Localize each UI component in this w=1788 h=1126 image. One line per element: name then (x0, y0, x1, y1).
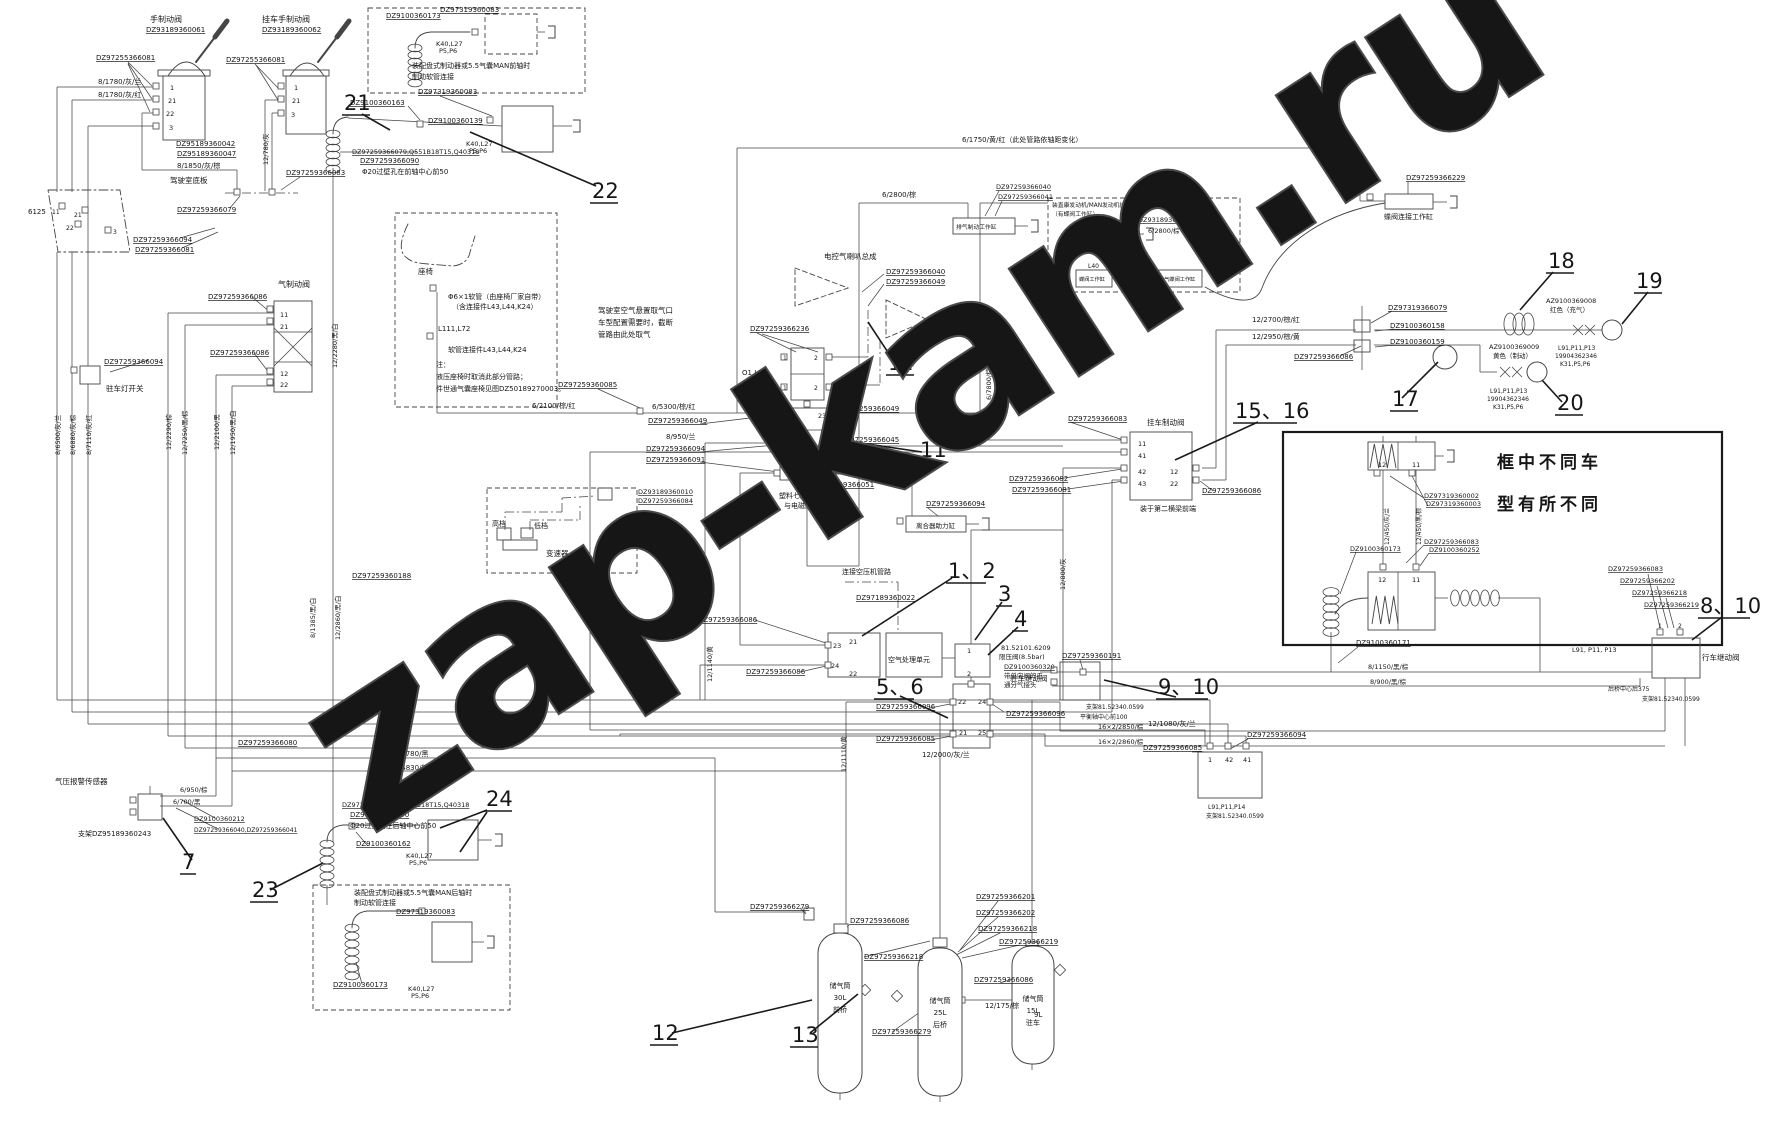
part-label: 支架81.52340.0599 (1086, 703, 1144, 711)
part-label: 1 (170, 84, 174, 92)
part-label: 22 (958, 698, 966, 706)
port-square (130, 809, 136, 815)
shape-path (196, 37, 215, 62)
part-label: 挂车手制动阀 (262, 14, 310, 24)
pipe-size-label: 12/7250/黑/棕 (180, 410, 189, 455)
part-label: 22 (1170, 480, 1178, 488)
item-number: 18 (1548, 249, 1575, 273)
item-leader (1692, 617, 1722, 640)
valve-diamond (891, 990, 902, 1001)
watermark-text: zap-kam.ru (250, 0, 1584, 885)
item-number: 5、6 (876, 675, 924, 699)
part-label: 装配盘式制动器或5.5气囊MAN前轴时 (412, 61, 530, 70)
part-label: 41 (1138, 452, 1146, 460)
part-label: DZ97259366086 (746, 668, 806, 676)
port-square (1409, 470, 1415, 476)
part-label: DZ97259366086 (1202, 487, 1262, 495)
hose-coil (345, 948, 359, 956)
part-label: 3 (169, 124, 173, 132)
part-label: DZ97259366086 (850, 917, 910, 925)
part-label: 平衡轴中心前100 (1080, 713, 1128, 721)
part-label: 21 (849, 638, 857, 646)
pipe-size-label: 12/800/灰 (1058, 558, 1067, 590)
part-label: AZ9100369008 (1546, 297, 1596, 305)
part-label: 驾驶室空气悬置取气口 (598, 305, 673, 315)
part-label: 制动软管连接 (354, 898, 396, 907)
part-label: 座椅 (418, 266, 433, 276)
part-label: 12 (1378, 461, 1386, 469)
pipe-line (1080, 660, 1083, 670)
pipe-line (1390, 476, 1424, 498)
part-label: 后桥中心后375 (1608, 685, 1650, 693)
part-label: DZ9100360173 (1350, 545, 1401, 553)
part-label: DZ97319360003 (1426, 500, 1481, 508)
component-box (432, 922, 472, 962)
part-label: 6/700/黑 (173, 798, 201, 806)
part-label: 气压报警传感器 (55, 776, 108, 786)
port-square (1243, 743, 1249, 749)
part-label: 手制动阀 (150, 14, 182, 24)
port-square (1121, 437, 1127, 443)
item-number: 20 (1557, 391, 1584, 415)
port-square (1121, 449, 1127, 455)
part-label: 11 (1412, 461, 1420, 469)
part-label: 21 (168, 97, 176, 105)
part-label: 3 (113, 229, 117, 236)
item-leader (1175, 422, 1258, 460)
port-square (130, 797, 136, 803)
part-label: DZ9100360173 (333, 981, 388, 989)
part-label: DZ97259366085 (876, 735, 935, 743)
part-label: DZ97259366079 (177, 206, 236, 214)
port-square (1413, 564, 1419, 570)
port-square (82, 207, 88, 213)
part-label: 11 (1412, 576, 1420, 584)
part-label: 件世通气囊座椅见图DZ50189270003。 (436, 384, 565, 393)
part-label: 注： (436, 360, 450, 369)
part-label: DZ97259366086 (1294, 353, 1354, 361)
part-label: 22 (280, 381, 288, 389)
pipe-line (1371, 311, 1392, 323)
part-label: K31,P5,P6 (1493, 404, 1523, 411)
port-square (825, 642, 831, 648)
port-square (1080, 669, 1086, 675)
hose-coil (326, 158, 340, 166)
shape-path (1335, 598, 1368, 614)
port-square (267, 379, 273, 385)
shape-path (290, 63, 324, 76)
part-label: 19904362346 (1555, 353, 1597, 360)
test-port-circle (1602, 320, 1622, 340)
part-label: AZ9100369009 (1489, 343, 1539, 351)
part-label: 8/1850/灰/棕 (177, 161, 220, 170)
component-box (368, 8, 585, 93)
item-number: 21 (344, 91, 371, 115)
part-label: 支架DZ95189360243 (78, 829, 151, 838)
hose-coil (345, 956, 359, 964)
part-label: DZ97259366202 (976, 909, 1035, 917)
component-box (886, 633, 942, 677)
port-square (75, 221, 81, 227)
pipe-line (256, 65, 278, 100)
port-square (1121, 477, 1127, 483)
item-number: 7 (182, 850, 195, 874)
part-label: DZ97259366094 (133, 236, 193, 244)
part-label: DZ97259366085 (1143, 744, 1202, 752)
hose-coil (408, 51, 422, 59)
part-label: 22 (166, 110, 174, 118)
port-square (987, 731, 993, 737)
part-label: DZ97259366219 (1644, 601, 1699, 609)
shape-path (337, 21, 349, 37)
part-label: 22 (66, 225, 74, 232)
part-label: 8/1780/灰/兰 (98, 77, 141, 86)
pipe-size-label: 12/2100/黑 (213, 414, 221, 450)
part-label: 空气处理单元 (888, 655, 930, 664)
part-label: 软管连接件L43,L44,K24 (448, 345, 527, 354)
part-label: 红色（充气） (1550, 305, 1589, 314)
port-square (1051, 679, 1057, 685)
pipe-size-label: 12/780/灰 (261, 133, 270, 165)
part-label: 22 (849, 670, 857, 678)
part-label: DZ9100360171 (1356, 639, 1411, 647)
part-label: DZ97259360191 (1062, 652, 1121, 660)
part-label: Φ6×1软管（由座椅厂家自带） (448, 292, 545, 301)
part-label: 带单向阀的五 (1004, 671, 1044, 680)
part-label: 驻车灯开关 (106, 383, 144, 393)
clip-symbol (982, 518, 989, 530)
part-label: DZ97255366081 (226, 56, 285, 64)
item-number: 9、10 (1158, 675, 1219, 699)
item-leader (362, 114, 390, 130)
pipe-line (255, 64, 278, 88)
part-label: DZ97259366086 (208, 293, 268, 301)
hose-coil (345, 964, 359, 972)
hose-coil (1481, 590, 1490, 606)
part-label: 1 (1658, 623, 1662, 630)
part-label: 2 (967, 670, 971, 678)
pipe-line (992, 704, 1004, 712)
pipe-line (956, 933, 1000, 955)
port-square (487, 117, 493, 123)
part-label: 12/1080/灰/兰 (1148, 719, 1196, 728)
item-number: 12 (652, 1021, 679, 1045)
part-label: 12/2000/灰/兰 (922, 750, 970, 759)
pipe-size-label: 8/6880/灰/棕 (68, 414, 77, 455)
tank-label: 驻车 (1026, 1018, 1040, 1027)
pipe-line (1340, 552, 1356, 594)
part-label: 2 (1678, 623, 1682, 630)
pipe-size-label: 12/450/灰/兰 (1383, 508, 1391, 545)
part-label: 11 (280, 311, 288, 319)
port-square (1207, 743, 1213, 749)
port-square (278, 96, 284, 102)
item-number: 19 (1636, 269, 1663, 293)
tank-label: 储气筒 (1023, 994, 1044, 1003)
port-square (153, 109, 159, 115)
part-label: 21 (280, 323, 288, 331)
component-box (502, 106, 553, 152)
part-label: 6/950/棕 (180, 785, 208, 794)
part-label: 黄色（制动） (1493, 351, 1532, 360)
port-square (153, 83, 159, 89)
port-square (153, 96, 159, 102)
part-label: P5,P6 (411, 992, 429, 1000)
part-label: DZ97259366086 (210, 349, 270, 357)
test-port-circle (1527, 362, 1547, 382)
hose-coil (1323, 588, 1339, 597)
part-label: 制动软管连接 (412, 72, 454, 81)
part-label: 车型配置需要时，截断 (598, 317, 673, 327)
port-square (153, 123, 159, 129)
part-label: 23 (833, 642, 841, 650)
part-label: DZ97259366083 (1608, 565, 1663, 573)
hose-coil (1323, 596, 1339, 605)
port-square (59, 203, 65, 209)
part-label: DZ97259366081 (1012, 486, 1071, 494)
part-label: 11 (1138, 440, 1146, 448)
part-label: P5,P6 (439, 47, 457, 55)
pipe-size-label: 12/2280/黑/白 (330, 324, 339, 368)
port-square (278, 83, 284, 89)
part-label: DZ97319360083 (440, 6, 499, 14)
pipe-line (598, 389, 640, 408)
part-label: L91,P11,P14 (1208, 804, 1245, 811)
part-label: 行车继动阀 (1702, 652, 1740, 662)
pipe-line (128, 64, 150, 112)
part-label: L91,P11,P13 (1558, 345, 1595, 352)
part-label: DZ97259366218 (978, 925, 1037, 933)
part-label: 24 (978, 698, 986, 706)
part-label: 81.52101.6209 (1001, 644, 1051, 652)
shape-path (168, 62, 205, 76)
hose-coil (345, 972, 359, 980)
component-box (953, 684, 990, 748)
part-label: DZ97259366094 (1247, 731, 1307, 739)
part-label: DZ97259366201 (976, 893, 1035, 901)
item-number: 1、2 (948, 559, 996, 583)
shape-path (48, 190, 130, 252)
part-label: 气制动阀 (278, 279, 310, 289)
part-label: 6/2800/棕 (882, 190, 916, 199)
component-box (834, 924, 848, 933)
part-label: 24 (831, 662, 839, 670)
item-number: 4 (1014, 607, 1027, 631)
part-label: L111,L72 (438, 325, 470, 333)
shape-path (401, 224, 475, 266)
part-label: DZ97259366086 (974, 976, 1034, 984)
pipe-size-label: 12/1110/黄 (839, 736, 848, 772)
part-label: DZ97255366081 (96, 54, 155, 62)
component-box (933, 938, 947, 947)
pneumatic-brake-diagram: 储气筒30L前桥储气筒25L后桥储气筒15L驻车手制动阀DZ9318936006… (0, 0, 1788, 1126)
pipe-line (281, 177, 300, 190)
component-box (286, 76, 326, 134)
item-number: 3 (998, 582, 1011, 606)
clip-symbol (495, 834, 502, 846)
part-label: 16×2/2860/棕 (1098, 737, 1144, 746)
port-square (267, 318, 273, 324)
pipe-line (962, 945, 1020, 958)
part-label: DZ95189360042 (176, 140, 235, 148)
tank-label: 后桥 (933, 1020, 947, 1029)
part-label: DZ97259366083 (1424, 538, 1479, 546)
part-label: 21 (959, 729, 967, 737)
schematic-page: 储气筒30L前桥储气筒25L后桥储气筒15L驻车手制动阀DZ9318936006… (0, 0, 1788, 1126)
item-leader (1622, 292, 1648, 324)
part-label: 42 (1138, 468, 1146, 476)
part-label: 通分气接头 (1004, 680, 1037, 689)
part-label: 12 (1170, 468, 1178, 476)
part-label: 6125 (28, 208, 46, 216)
pipe-size-label: 12/1950/黑/白 (228, 411, 237, 455)
part-label: DZ9100360139 (428, 117, 483, 125)
part-label: 管路由此处取气 (598, 329, 651, 339)
part-label: 11 (52, 209, 60, 216)
hose-coil (320, 848, 334, 856)
part-label: DZ9100360252 (1429, 546, 1480, 554)
part-label: 支架81.52340.0599 (1206, 812, 1264, 820)
part-label: DZ97259366040,DZ97259366041 (194, 827, 298, 834)
part-label: 21 (74, 212, 82, 219)
part-label: DZ97259366279 (750, 903, 809, 911)
port-square (987, 699, 993, 705)
part-label: DZ97259366080 (238, 739, 297, 747)
part-label: 8/1780/灰/红 (98, 90, 141, 99)
port-square (950, 699, 956, 705)
part-label: DZ97259360085 (558, 381, 617, 389)
item-number: 17 (1392, 387, 1419, 411)
part-label: DZ97259366218 (864, 953, 923, 961)
part-label: 43 (1138, 480, 1146, 488)
component-box (955, 644, 990, 677)
clip-symbol (548, 26, 555, 38)
clip-symbol (487, 936, 494, 948)
part-label: DZ9100360320 (1004, 663, 1055, 671)
pipe-size-label: 8/7110/灰/红 (84, 414, 93, 455)
item-leader (862, 578, 952, 636)
part-label: DZ97259366081 (135, 246, 194, 254)
part-label: 16×2/2850/棕 (1098, 722, 1144, 731)
part-label: （含连接件L43,L44,K24） (452, 302, 538, 311)
tank-label: 25L (934, 1009, 947, 1017)
hose-coil (1461, 590, 1470, 606)
hose-coil (345, 932, 359, 940)
part-label: DZ93189360061 (146, 26, 205, 34)
clip-symbol (1447, 450, 1454, 462)
hose-coil (326, 137, 340, 145)
hose-coil (1323, 604, 1339, 613)
part-label: DZ97259366094 (104, 358, 164, 366)
pipe-line (440, 96, 492, 116)
part-label: 19904362346 (1487, 396, 1529, 403)
component-box (80, 366, 100, 384)
pipe-line (1420, 553, 1429, 566)
hose-coil (1323, 612, 1339, 621)
part-label: 1 (1208, 756, 1212, 764)
part-label: DZ93189360062 (262, 26, 321, 34)
part-label: 装配盘式制动器或5.5气囊MAN后轴时 (354, 888, 472, 897)
tank-label: 30L (834, 994, 847, 1002)
pipe-line (1406, 545, 1424, 563)
port-square (1374, 470, 1380, 476)
port-square (1380, 564, 1386, 570)
port-square (427, 333, 433, 339)
part-label: 1 (294, 84, 298, 92)
part-label: 8/1150/黑/棕 (1368, 662, 1409, 671)
port-square (267, 306, 273, 312)
hose-coil (1471, 590, 1480, 606)
part-label: DZ97259366219 (999, 938, 1058, 946)
component-box (1060, 662, 1100, 700)
part-label: DZ97259366202 (1620, 577, 1675, 585)
tank-label: 储气筒 (930, 996, 951, 1005)
valve-diamond (1054, 964, 1065, 975)
port-square (105, 227, 111, 233)
part-label: DZ97189360022 (856, 594, 915, 602)
part-label: L91, P11, P13 (1572, 646, 1617, 654)
component-box (485, 14, 537, 54)
port-square (71, 367, 77, 373)
part-label: DZ97259366079,Q551B18T15,Q40318 (352, 148, 479, 156)
port-square (1225, 743, 1231, 749)
part-label: 12 (1378, 576, 1386, 584)
port-square (278, 110, 284, 116)
tank-label: 储气筒 (830, 981, 851, 990)
part-label: 12/175/棕 (985, 1001, 1019, 1010)
part-label: DZ9100360173 (386, 12, 441, 20)
item-number: 15、16 (1235, 399, 1309, 423)
frame-note-text: 框中不同车 (1497, 452, 1602, 473)
part-label: 支架81.52340.0599 (1642, 695, 1700, 703)
component-box (138, 794, 162, 820)
pipe-line (1338, 647, 1358, 663)
part-label: L91,P11,P13 (1490, 388, 1527, 395)
part-label: 液压座椅时取消此部分管路； (436, 372, 527, 381)
part-label: DZ97319360083 (396, 908, 455, 916)
part-label: DZ97319366079 (1388, 304, 1447, 312)
port-square (1193, 465, 1199, 471)
part-label: DZ97259366279 (872, 1028, 931, 1036)
part-label: DZ9100360212 (194, 815, 245, 823)
hose-coil (345, 940, 359, 948)
part-label: DZ97319360002 (1424, 492, 1479, 500)
part-label: DZ97319360083 (418, 88, 477, 96)
part-label: 8/900/黑/棕 (1370, 677, 1407, 686)
port-square (430, 285, 436, 291)
pipe-size-label: 12/2290/棕 (164, 414, 173, 450)
part-label: 9L (1034, 1011, 1042, 1019)
port-square (234, 189, 240, 195)
shape-path (333, 117, 348, 134)
shape-path (318, 37, 337, 62)
part-label: DZ9100360158 (1390, 322, 1445, 330)
test-port-circle (1433, 345, 1457, 369)
hose-coil (326, 144, 340, 152)
shape-path (215, 21, 227, 37)
part-label: DZ97259366096 (1006, 710, 1066, 718)
port-square (968, 681, 974, 687)
part-label: DZ97259366083 (286, 169, 345, 177)
port-square (269, 189, 275, 195)
part-label: 驾驶室底板 (170, 175, 208, 185)
part-label: 6/2100/棕/红 (532, 401, 575, 410)
pipe-line (408, 106, 420, 120)
component-box (158, 70, 210, 76)
pipe-line (958, 917, 998, 952)
port-square (950, 731, 956, 737)
part-label: Φ20过壁孔在前轴中心前50 (362, 167, 448, 176)
